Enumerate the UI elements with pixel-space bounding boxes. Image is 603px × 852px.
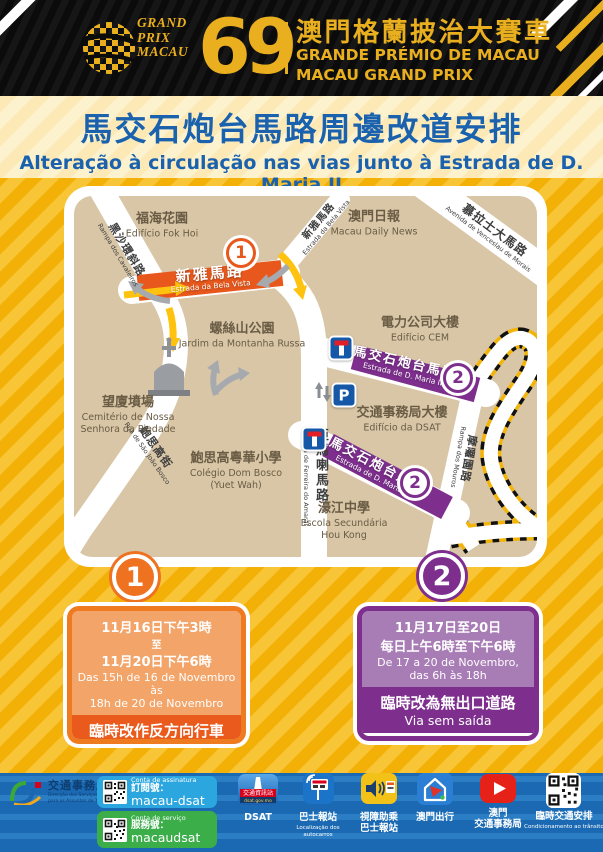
bus-arrival-app-icon [303, 773, 334, 804]
map-card: 黑沙環斜路 Rampa dos Cavaleiros 新雅馬路 Estrada … [64, 186, 547, 567]
landmark-pt: Jardim da Montanha Russa [179, 338, 306, 350]
section-badge-2: 2 [419, 553, 465, 599]
app-sub-bus: Localização dos autocarros [296, 825, 339, 838]
play-icon [480, 774, 516, 803]
app-label-youtube: 澳門 交通事務局 [474, 809, 522, 831]
map-badge-2a: 2 [443, 363, 473, 393]
no-exit-sign-icon [329, 336, 354, 361]
temp-traffic-qr-icon [546, 773, 581, 808]
event-title-pt: GRANDE PRÉMIO DE MACAU [296, 46, 540, 64]
period-pt-line: das 6h às 18h [364, 669, 532, 682]
svg-text:交通資訊站: 交通資訊站 [243, 789, 273, 797]
action-zh: 臨時改作反方向行車 [74, 720, 239, 741]
badge-number: 2 [452, 368, 464, 388]
map: 黑沙環斜路 Rampa dos Cavaleiros 新雅馬路 Estrada … [74, 196, 537, 557]
period-pt: De 17 a 20 de Novembro, das 6h às 18h [364, 656, 532, 682]
period-pt-line: 18h de 20 de Novembro [74, 697, 239, 710]
landmark-fok-hoi: 福海花園 Edifício Fok Hoi [126, 211, 198, 240]
badge-number: 1 [126, 562, 145, 593]
subscribe-text: Conta de assinatura 訂閱號： macau-dsat [131, 777, 205, 807]
notice-frame: 11月17日至20日 每日上午6時至下午6時 De 17 a 20 de Nov… [357, 606, 539, 741]
notice-frame: 11月16日下午3時 至 11月20日下午6時 Das 15h de 16 de… [67, 606, 246, 744]
period-start-zh: 11月16日下午3時 [74, 617, 239, 636]
gp-word: GRAND [137, 15, 187, 30]
period-zh-line: 11月17日至20日 [364, 617, 532, 636]
qr-code-icon [103, 780, 127, 804]
youtube-icon [480, 774, 516, 803]
landmark-cemetery: 望廈墳場 Cemitério de Nossa Senhora da Pieda… [80, 395, 175, 437]
action-pt-line: Via sem saída [364, 713, 532, 728]
wechat-service-pill: Conta de serviço 服務號： macaudsat [97, 811, 217, 848]
speaker-bus-icon [361, 773, 397, 804]
section-badge-1: 1 [112, 554, 158, 600]
landmark-zh: 澳門日報 [331, 209, 418, 226]
header: GRAND PRIX MACAU 69 澳門格蘭披治大賽車 GRANDE PRÉ… [0, 0, 603, 96]
landmark-pt: Hou Kong [301, 530, 388, 542]
badge-number: 2 [433, 561, 452, 592]
badge-number: 2 [409, 473, 421, 493]
app-sub-line: autocarros [296, 832, 339, 839]
app-sub-line: Localização dos [296, 825, 339, 832]
assist-bus-app-icon [361, 773, 397, 804]
house-navigation-icon [417, 773, 453, 805]
landmark-pt: Escola Secundária [301, 518, 388, 530]
period-to: 至 [74, 636, 239, 651]
dsat-logo-icon [8, 777, 44, 805]
map-badge-1: 1 [226, 238, 256, 268]
qr-code-icon [546, 773, 581, 808]
app-label-travel: 澳門出行 [416, 813, 454, 824]
landmark-dom-bosco: 鮑思高粵華小學 Colégio Dom Bosco (Yuet Wah) [190, 451, 282, 493]
parking-sign-icon: P [332, 383, 357, 408]
lighthouse-icon: 交通資訊站 dsat.gov.mo [238, 774, 278, 805]
app-label-assist: 視障助乘 巴士報站 [360, 813, 398, 835]
edition-number: 69 [198, 2, 292, 91]
header-divider [285, 22, 288, 74]
bus-stop-icon [303, 773, 334, 804]
macau-travel-app-icon [417, 773, 453, 805]
svg-text:dsat.gov.mo: dsat.gov.mo [244, 798, 272, 804]
notice-period: 11月17日至20日 每日上午6時至下午6時 De 17 a 20 de Nov… [362, 611, 534, 687]
landmark-zh: 電力公司大樓 [381, 315, 459, 332]
gp-word: PRIX [137, 30, 171, 45]
notice-card-1: 11月16日下午3時 至 11月20日下午6時 Das 15h de 16 de… [63, 602, 250, 748]
landmark-dsat-building: 交通事務局大樓 Edifício da DSAT [356, 405, 447, 434]
landmark-pt: Macau Daily News [331, 226, 418, 238]
notice-banner: 馬交石炮台馬路周邊改道安排 Alteração à circulação nas… [0, 96, 603, 178]
no-exit-sign-icon [302, 427, 327, 452]
app-sub-temp-traffic: Condicionamento ao trânsito [524, 824, 603, 831]
landmark-pt: Edifício Fok Hoi [126, 228, 198, 240]
period-end-zh: 11月20日下午6時 [74, 651, 239, 670]
landmark-pt: (Yuet Wah) [190, 480, 282, 492]
qr-code-icon [103, 818, 127, 842]
landmark-pt: Colégio Dom Bosco [190, 468, 282, 480]
app-label-bus: 巴士報站 [299, 813, 337, 824]
landmark-zh: 交通事務局大樓 [356, 405, 447, 422]
app-label-temp-traffic: 臨時交通安排 [535, 812, 592, 823]
grand-prix-logo-text: GRAND PRIX MACAU [137, 16, 188, 60]
poster: GRAND PRIX MACAU 69 澳門格蘭披治大賽車 GRANDE PRÉ… [0, 0, 603, 852]
action-pt-line: Invertido o sentido da [74, 741, 239, 744]
landmark-zh: 螺絲山公園 [179, 321, 306, 338]
period-pt: Das 15h de 16 de Novembro às 18h de 20 d… [74, 671, 239, 710]
sign-bar [334, 341, 348, 346]
wechat-subscribe-pill: Conta de assinatura 訂閱號： macau-dsat [97, 776, 217, 808]
app-label-line: 巴士報站 [360, 824, 398, 835]
dsat-info-station-app-icon: 交通資訊站 dsat.gov.mo [238, 774, 278, 805]
landmark-daily-news: 澳門日報 Macau Daily News [331, 209, 418, 238]
period-pt-line: De 17 a 20 de Novembro, [364, 656, 532, 669]
landmark-zh: 鮑思高粵華小學 [190, 451, 282, 468]
grand-prix-checkered-logo-icon [82, 10, 138, 86]
landmark-cem: 電力公司大樓 Edifício CEM [381, 315, 459, 344]
notice-title-zh: 馬交石炮台馬路周邊改道安排 [0, 96, 603, 150]
landmark-zh: 福海花園 [126, 211, 198, 228]
footer: 交通事務局 Direcção dos Serviços para os Assu… [0, 773, 603, 852]
notice-action: 臨時改為無出口道路 Via sem saída [362, 687, 534, 733]
landmark-pt: Edifício da DSAT [356, 422, 447, 434]
landmark-zh: 望廈墳場 [80, 395, 175, 412]
notice-card-2: 11月17日至20日 每日上午6時至下午6時 De 17 a 20 de Nov… [353, 602, 543, 745]
landmark-hou-kong: 濠江中學 Escola Secundária Hou Kong [301, 501, 388, 543]
notice-period: 11月16日下午3時 至 11月20日下午6時 Das 15h de 16 de… [72, 611, 241, 715]
parking-letter: P [339, 386, 350, 404]
sign-bar [307, 432, 321, 437]
app-label-line: 交通事務局 [474, 820, 522, 831]
service-account: macaudsat [131, 831, 200, 844]
action-zh: 臨時改為無出口道路 [364, 692, 532, 713]
service-text: Conta de serviço 服務號： macaudsat [131, 815, 200, 845]
notice-action: 臨時改作反方向行車 Invertido o sentido da circula… [72, 715, 241, 744]
period-pt-line: Das 15h de 16 de Novembro às [74, 671, 239, 697]
landmark-zh: 濠江中學 [301, 501, 388, 518]
landmark-pt: Senhora da Piedade [80, 424, 175, 436]
landmark-pt: Edifício CEM [381, 332, 459, 344]
badge-number: 1 [235, 243, 247, 263]
event-title-en: MACAU GRAND PRIX [296, 66, 473, 84]
event-title-zh: 澳門格蘭披治大賽車 [296, 12, 553, 49]
gp-word: MACAU [137, 44, 188, 59]
map-badge-2b: 2 [400, 468, 430, 498]
landmark-russa: 螺絲山公園 Jardim da Montanha Russa [179, 321, 306, 350]
landmark-pt: Cemitério de Nossa [80, 412, 175, 424]
app-label-dsat: DSAT [244, 813, 272, 824]
subscribe-account: macau-dsat [131, 794, 205, 807]
period-zh-line: 每日上午6時至下午6時 [364, 636, 532, 655]
